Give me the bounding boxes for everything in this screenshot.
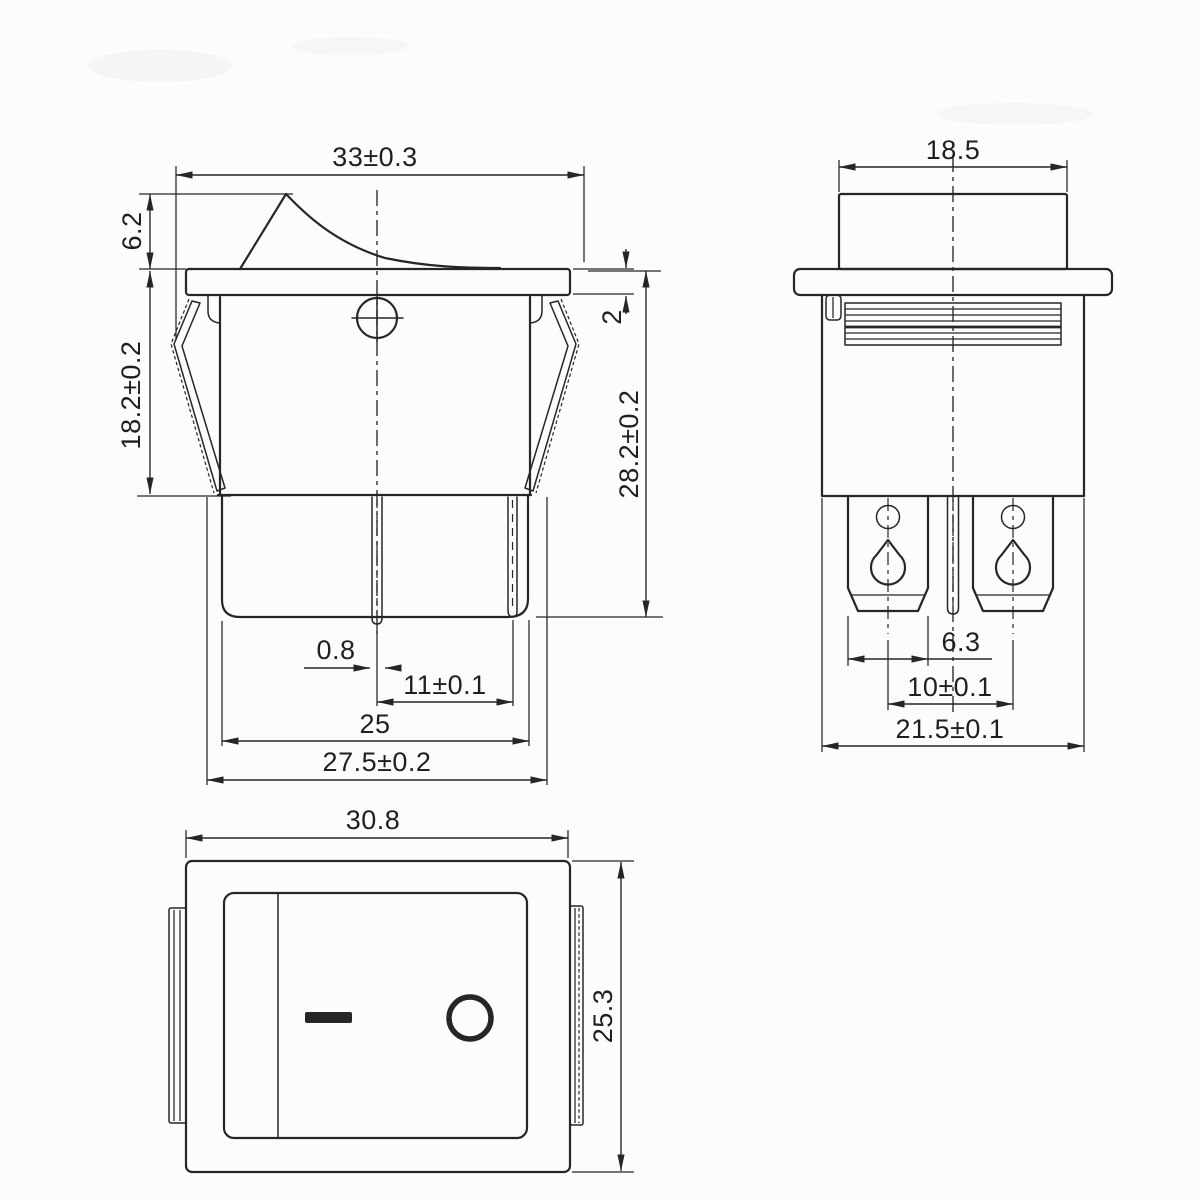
on-symbol bbox=[305, 1012, 352, 1023]
watermark-smudges bbox=[88, 37, 1093, 125]
dim-rocker-width: 18.5 bbox=[839, 135, 1067, 192]
dim-overall-height-label: 28.2±0.2 bbox=[614, 390, 644, 499]
flange-shoulder-right bbox=[530, 295, 542, 323]
dim-body-height: 18.2±0.2 bbox=[116, 271, 231, 496]
outer-frame bbox=[186, 861, 570, 1172]
clip-serration bbox=[536, 299, 579, 493]
dim-rocker-height-label: 6.2 bbox=[117, 211, 147, 250]
terminal-pin-center bbox=[372, 497, 382, 624]
flange-shoulder-left bbox=[208, 295, 220, 323]
off-symbol bbox=[449, 997, 491, 1039]
side-clip-left bbox=[169, 908, 186, 1123]
dim-flange-thickness-label: 2 bbox=[597, 309, 627, 325]
front-view: 33±0.3 6.2 18.2±0.2 2 28.2±0.2 0.8 bbox=[116, 142, 663, 785]
clip-lines bbox=[174, 910, 180, 1121]
clip-outline bbox=[169, 908, 186, 1123]
dim-terminal-pitch-label: 10±0.1 bbox=[907, 672, 992, 702]
dim-rocker-width-label: 18.5 bbox=[926, 135, 981, 165]
clip-outline bbox=[525, 301, 576, 491]
dim-face-height-label: 25.3 bbox=[588, 989, 618, 1044]
drawing-canvas: 33±0.3 6.2 18.2±0.2 2 28.2±0.2 0.8 bbox=[0, 0, 1200, 1200]
smudge bbox=[292, 37, 408, 55]
switch-body bbox=[218, 297, 531, 495]
terminal-lug-right bbox=[973, 496, 1053, 634]
dim-pin-pitch: 11±0.1 bbox=[377, 620, 513, 706]
rocker-bezel bbox=[224, 893, 527, 1138]
dim-pin-thickness-label: 0.8 bbox=[316, 635, 355, 665]
dim-terminal-width-label: 6.3 bbox=[941, 627, 980, 657]
dim-mount-width-label: 27.5±0.2 bbox=[323, 747, 432, 777]
clip-outline bbox=[570, 906, 583, 1125]
clip-serration bbox=[171, 299, 214, 493]
dim-flange-thickness: 2 bbox=[573, 249, 634, 325]
dim-front-width-top: 33±0.3 bbox=[176, 142, 584, 340]
terminal-pin-right bbox=[508, 497, 517, 617]
terminal-lug-left bbox=[848, 496, 928, 634]
extension-lines bbox=[139, 194, 293, 269]
side-view: 18.5 6.3 10±0.1 21.5±0.1 bbox=[794, 135, 1112, 752]
spring-clip-right bbox=[525, 299, 579, 493]
spring-clip-left bbox=[171, 299, 225, 493]
smudge bbox=[88, 50, 232, 82]
dim-face-width: 30.8 bbox=[186, 805, 568, 858]
dim-pin-thickness: 0.8 bbox=[304, 635, 401, 668]
mounting-flange bbox=[186, 269, 570, 295]
rocker-profile bbox=[240, 194, 500, 269]
dim-body-height-label: 18.2±0.2 bbox=[116, 341, 146, 450]
dim-terminal-width: 6.3 bbox=[848, 616, 992, 666]
dim-rocker-height: 6.2 bbox=[117, 194, 293, 269]
smudge bbox=[937, 103, 1093, 125]
clip-outline bbox=[174, 301, 225, 491]
dim-body-width-label: 21.5±0.1 bbox=[896, 714, 1005, 744]
lower-housing bbox=[222, 495, 528, 617]
dim-face-width-label: 30.8 bbox=[346, 805, 401, 835]
dim-body-bottom-width-label: 25 bbox=[359, 709, 390, 739]
dim-pin-pitch-label: 11±0.1 bbox=[403, 670, 486, 700]
rocker-switch-drawing: 33±0.3 6.2 18.2±0.2 2 28.2±0.2 0.8 bbox=[0, 0, 1200, 1200]
face-view: 30.8 25.3 bbox=[169, 805, 634, 1172]
extension-lines bbox=[573, 269, 634, 294]
dim-front-width-top-label: 33±0.3 bbox=[332, 142, 417, 172]
extension-lines bbox=[176, 166, 584, 340]
latch-detail bbox=[826, 295, 841, 320]
dim-body-width: 21.5±0.1 bbox=[822, 498, 1084, 752]
side-clip-right bbox=[570, 906, 583, 1125]
